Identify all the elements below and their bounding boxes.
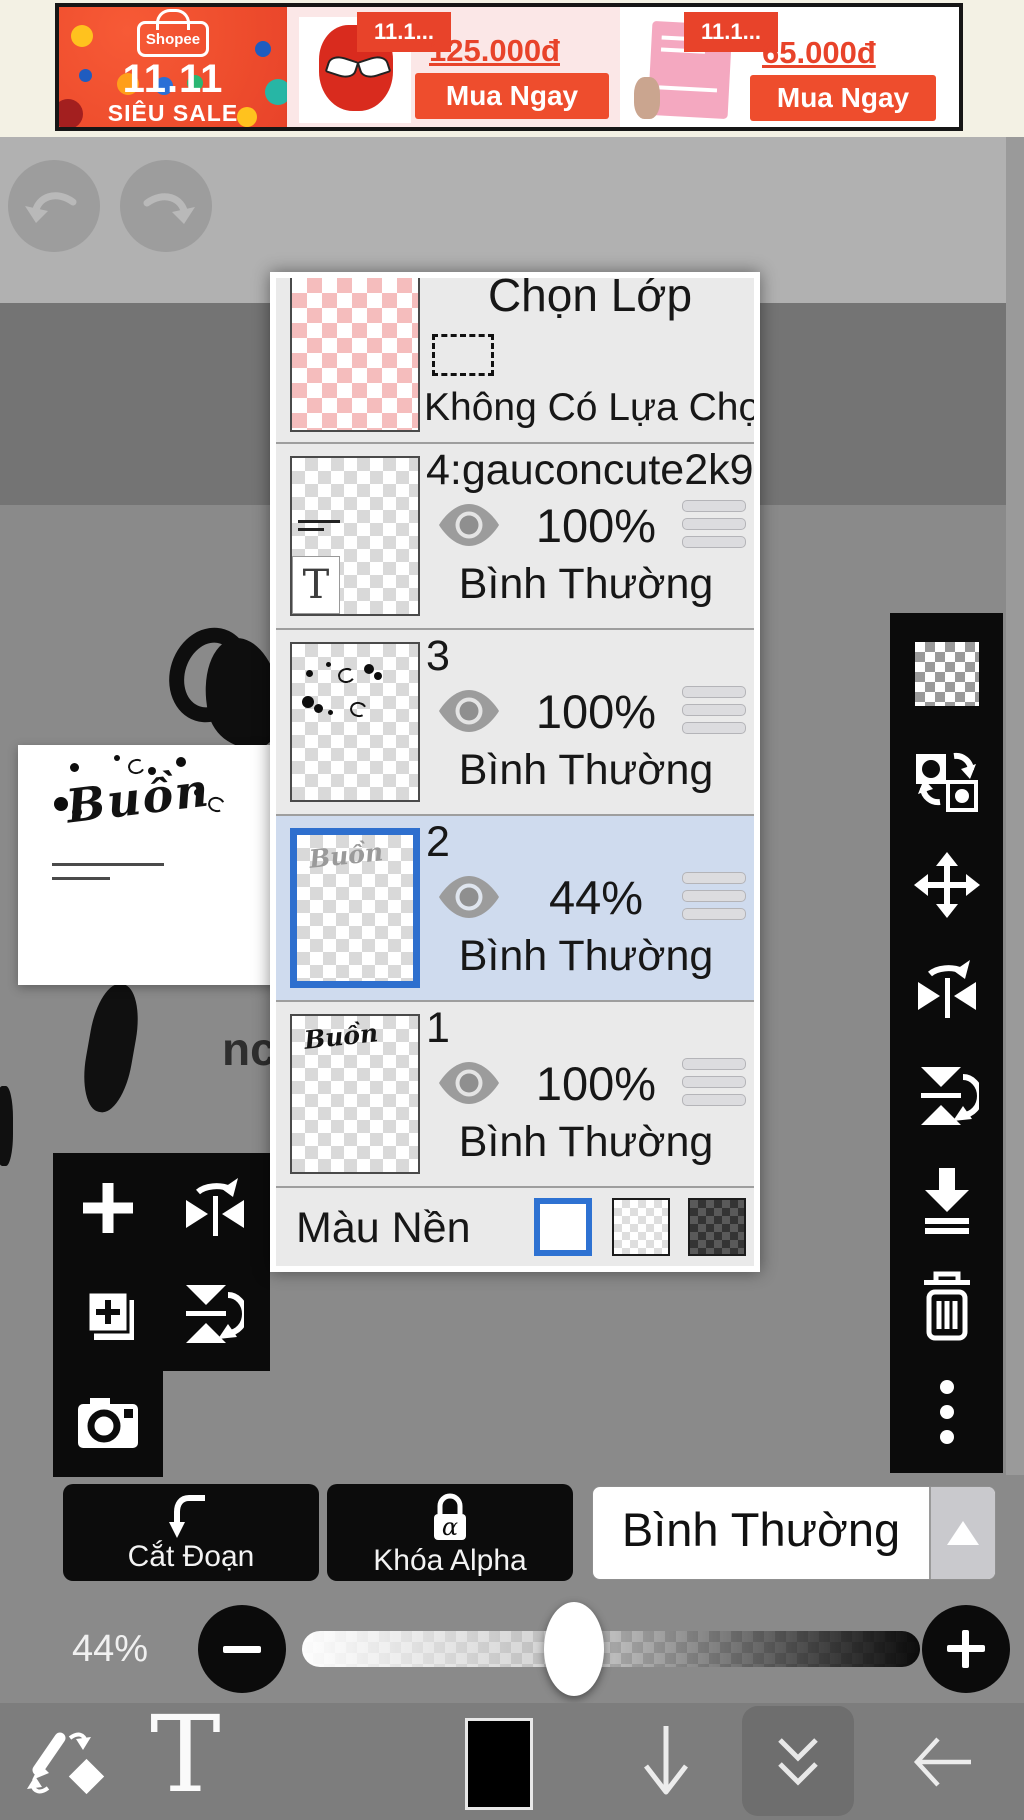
doodle-squiggle [348, 700, 368, 719]
selection-status: Không Có Lựa Chọn [424, 386, 754, 430]
panel-title: Chọn Lớp [426, 278, 754, 322]
artwork-stray-text: nc [222, 1022, 276, 1076]
thumb-artwork-word: Buồn [303, 1018, 380, 1055]
thumb-text-line [298, 520, 340, 523]
layers-panel: Chọn Lớp Không Có Lựa Chọn T 4:gauconcut… [270, 272, 760, 1272]
artwork-caption-line [52, 877, 110, 880]
shopee-ad-banner[interactable]: Shopee 11.11 SIÊU SALE 11.1... 125.000đ … [55, 3, 963, 131]
text-tool[interactable]: T [150, 1699, 221, 1810]
back-button[interactable] [908, 1727, 980, 1797]
doodle-dot [364, 664, 374, 674]
layer-blend-mode: Bình Thường [436, 746, 736, 795]
plus-icon [947, 1630, 985, 1668]
flip-vertical-icon[interactable] [912, 1061, 982, 1131]
buy-now-button[interactable]: Mua Ngay [750, 75, 936, 121]
undo-icon [23, 182, 85, 231]
delete-layer-icon[interactable] [912, 1272, 982, 1342]
card-line [659, 85, 717, 92]
decor-dot [237, 107, 257, 127]
doodle-dot [114, 755, 120, 761]
bg-transparent-swatch[interactable] [612, 1198, 670, 1256]
opacity-value-label: 44% [72, 1628, 148, 1671]
opacity-plus-button[interactable] [922, 1605, 1010, 1693]
convert-layer-icon[interactable] [912, 744, 982, 814]
drag-handle[interactable] [682, 872, 746, 926]
add-layer-icon[interactable] [75, 1175, 141, 1241]
layer-name: 4:gauconcute2k9 [426, 446, 754, 495]
artwork-caption-line [52, 863, 164, 866]
doodle-dot [70, 763, 79, 772]
layer-select-header: Chọn Lớp Không Có Lựa Chọn [276, 278, 754, 442]
shopee-bag-icon: Shopee [137, 21, 209, 57]
hand-image [634, 77, 660, 119]
decor-dot [265, 79, 287, 105]
layer-row-1[interactable]: Buồn 1 100% Bình Thường [276, 1000, 754, 1186]
layer-opacity: 100% [491, 1056, 701, 1111]
doodle-dot [326, 662, 331, 667]
doodle-squiggle [337, 666, 357, 684]
decor-dot [255, 41, 271, 57]
redo-icon [135, 183, 197, 229]
alpha-glyph: α [442, 1513, 458, 1541]
text-tool-glyph: T [150, 1699, 221, 1810]
layer-opacity: 44% [491, 870, 701, 925]
thumb-artwork-word: Buồn [308, 837, 385, 874]
more-options-icon[interactable] [912, 1377, 982, 1447]
background-color-row: Màu Nền [276, 1186, 754, 1266]
doodle-dot [328, 710, 333, 715]
transparency-checker-icon[interactable] [912, 639, 982, 709]
layer-name: 2 [426, 818, 450, 867]
layer-thumbnail [290, 642, 420, 802]
layer-name: 1 [426, 1004, 450, 1053]
redo-button[interactable] [120, 160, 212, 252]
clipping-arrow-icon [169, 1492, 213, 1540]
layer-blend-mode: Bình Thường [436, 1118, 736, 1167]
clipping-label: Cắt Đoạn [128, 1540, 255, 1574]
app-screen: Shopee 11.11 SIÊU SALE 11.1... 125.000đ … [0, 0, 1024, 1820]
artwork-blob [77, 980, 145, 1116]
layer-camera-toolbar [53, 1371, 163, 1477]
dropdown-arrow-button[interactable] [929, 1487, 995, 1579]
drag-handle[interactable] [682, 500, 746, 554]
import-camera-icon[interactable] [75, 1393, 141, 1453]
layer-thumbnail: Buồn [290, 828, 420, 988]
layer-row-3[interactable]: 3 100% Bình Thường [276, 628, 754, 814]
artwork-word: Buồn [63, 762, 213, 833]
checkerboard-glyph [915, 642, 979, 706]
triangle-up-icon [947, 1521, 979, 1545]
alpha-lock-label: Khóa Alpha [373, 1544, 526, 1578]
layers-panel-inner: Chọn Lớp Không Có Lựa Chọn T 4:gauconcut… [276, 278, 754, 1266]
alpha-lock-icon: α [427, 1492, 473, 1544]
selection-thumbnail [290, 278, 420, 432]
alpha-lock-button[interactable]: α Khóa Alpha [327, 1484, 573, 1581]
flip-horizontal-icon[interactable] [912, 955, 982, 1025]
drag-handle[interactable] [682, 1058, 746, 1112]
layer-row-4[interactable]: T 4:gauconcute2k9 100% Bình Thường [276, 442, 754, 628]
decor-dot [71, 25, 93, 47]
opacity-slider-track[interactable] [302, 1631, 920, 1667]
shopee-logo: Shopee 11.11 SIÊU SALE [59, 7, 287, 127]
drag-handle[interactable] [682, 686, 746, 740]
undo-button[interactable] [8, 160, 100, 252]
current-color-swatch[interactable] [465, 1718, 533, 1810]
text-layer-badge-glyph: T [303, 562, 330, 608]
ad-bar: Shopee 11.11 SIÊU SALE 11.1... 125.000đ … [0, 0, 1024, 137]
ad-product-1[interactable]: 11.1... 125.000đ Mua Ngay [287, 7, 620, 127]
text-layer-badge: T [292, 556, 340, 614]
background-color-label: Màu Nền [296, 1204, 470, 1253]
bg-white-swatch[interactable] [534, 1198, 592, 1256]
layer-thumbnail: T [290, 456, 420, 616]
shopee-brand-text: Shopee [146, 31, 200, 48]
doodle-dot [374, 672, 382, 680]
decor-dot [59, 99, 83, 127]
layer-name: 3 [426, 632, 450, 681]
layer-blend-mode: Bình Thường [436, 932, 736, 981]
merge-down-icon[interactable] [912, 1166, 982, 1236]
ad-product-2[interactable]: 11.1... 65.000đ Mua Ngay [620, 7, 959, 127]
brush-eraser-switch-tool[interactable] [18, 1721, 118, 1805]
layer-row-2-selected[interactable]: Buồn 2 44% Bình Thường [276, 814, 754, 1000]
doodle-dot [306, 670, 313, 677]
clipping-button[interactable]: Cắt Đoạn [63, 1484, 319, 1581]
opacity-slider-knob[interactable] [544, 1602, 604, 1696]
minus-icon [223, 1646, 261, 1653]
selection-marquee-icon [432, 334, 494, 376]
product-price: 125.000đ [429, 33, 560, 69]
bag-handle [156, 9, 190, 30]
move-layer-icon[interactable] [912, 850, 982, 920]
product-price: 65.000đ [762, 35, 876, 71]
artwork-blob [0, 1086, 13, 1166]
canvas-right-edge [1006, 137, 1024, 1475]
flip-horizontal-icon[interactable] [177, 1175, 253, 1241]
layer-thumbnail: Buồn [290, 1014, 420, 1174]
bg-dark-swatch[interactable] [688, 1198, 746, 1256]
thumb-text-line [298, 528, 324, 531]
layer-opacity: 100% [491, 498, 701, 553]
artboard-preview: Buồn [18, 745, 295, 985]
layer-actions-toolbar [890, 613, 1003, 1473]
layer-opacity: 100% [491, 684, 701, 739]
collapse-panel-button[interactable] [742, 1706, 854, 1816]
doodle-dot [302, 696, 314, 708]
move-down-tool[interactable] [634, 1715, 698, 1807]
flip-vertical-icon[interactable] [177, 1279, 247, 1349]
blend-mode-value: Bình Thường [593, 1502, 929, 1557]
main-toolbar: T [0, 1703, 1024, 1820]
buy-now-button[interactable]: Mua Ngay [415, 73, 609, 119]
opacity-minus-button[interactable] [198, 1605, 286, 1693]
layer-blend-mode: Bình Thường [436, 560, 736, 609]
duplicate-layer-icon[interactable] [71, 1279, 141, 1349]
event-text: 11.11 [123, 59, 224, 99]
doodle-dot [314, 704, 323, 713]
layer-add-toolbar [53, 1153, 270, 1371]
tagline-text: SIÊU SALE [108, 100, 238, 127]
blend-mode-dropdown[interactable]: Bình Thường [592, 1486, 996, 1580]
decor-dot [79, 69, 92, 82]
